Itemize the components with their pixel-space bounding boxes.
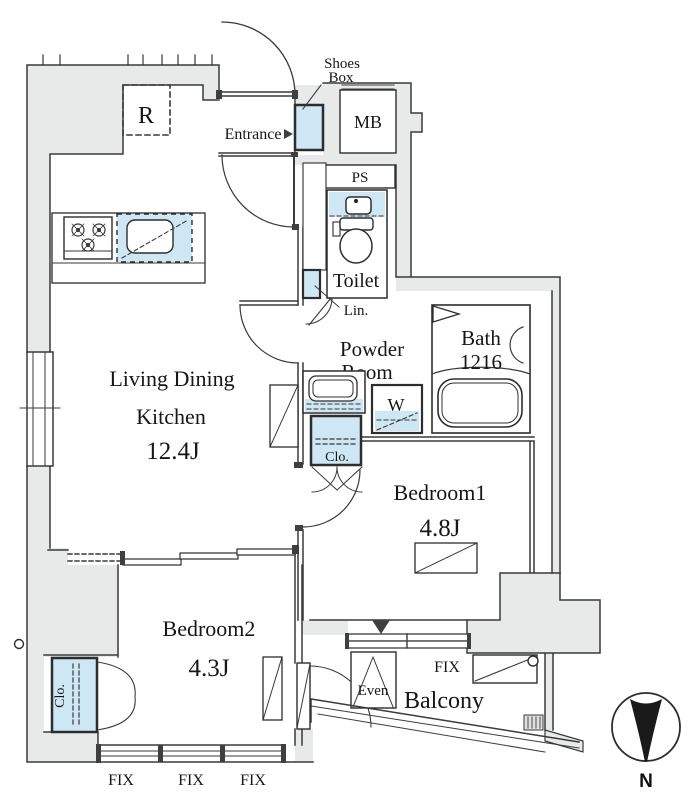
bedroom2-fix-windows [96, 744, 286, 763]
toilet-label: Toilet [333, 270, 380, 292]
ldk-label-2: Kitchen [136, 404, 206, 429]
shoes-box [295, 105, 323, 150]
meter-symbol [15, 640, 24, 649]
evacuation-hatch: Even [351, 652, 396, 708]
bath-size-label: 1216 [460, 350, 502, 374]
bedroom1-door-arc [303, 470, 360, 527]
ldk-label-1: Living Dining [109, 366, 234, 391]
bedroom2-size-label: 4.3J [189, 655, 230, 682]
meter-box-label: MB [354, 112, 382, 132]
balcony-label: Balcony [404, 688, 484, 714]
vanity-sink [303, 371, 365, 413]
fix-label-3: FIX [240, 772, 266, 789]
fix-label-2: FIX [178, 772, 204, 789]
washer-space: W [372, 385, 422, 433]
hand-wash-basin [346, 197, 371, 214]
floor-plan-page: Entrance Shoes Box MB PS Toilet Lin. Pow… [0, 0, 695, 800]
toilet-seat [340, 218, 373, 230]
bedroom2-closet-doors [97, 662, 135, 730]
ldk-window [20, 352, 60, 466]
bedroom2-closet: Clo. [52, 658, 135, 732]
ldk-size-label: 12.4J [146, 438, 200, 465]
refrigerator-label: R [138, 103, 154, 129]
bedroom1-size-label: 4.8J [420, 515, 461, 542]
boundary-tick-marks [43, 55, 212, 65]
entry-triangle-icon [372, 620, 390, 634]
balcony-drain [524, 715, 543, 730]
balcony-partition [473, 655, 538, 683]
fix-label-right: FIX [434, 659, 460, 676]
compass-icon: N [612, 693, 680, 792]
stove [64, 217, 112, 259]
ldk-bedroom2-partition [68, 545, 299, 565]
entrance-label: Entrance [225, 126, 282, 143]
evacuation-hatch-label: Even [358, 683, 389, 699]
kitchen-sink [117, 214, 192, 262]
entrance-door-arc [222, 22, 295, 95]
powder-room-label-1: Powder [340, 337, 404, 361]
bath-label: Bath [461, 326, 501, 350]
linen-label: Lin. [344, 303, 369, 319]
hall-closet: Clo. [311, 416, 362, 492]
bedroom1-label: Bedroom1 [394, 480, 487, 505]
shoes-box-label-2: Box [328, 70, 354, 86]
fix-label-1: FIX [108, 772, 134, 789]
closet-door-arcs [312, 467, 362, 492]
compass-north-label: N [639, 771, 653, 792]
hall-closet-label: Clo. [325, 450, 349, 465]
powder-door-arc [240, 305, 298, 363]
linen-cabinet [303, 270, 320, 298]
powder-door-leaf [240, 301, 298, 305]
floor-plan: Entrance Shoes Box MB PS Toilet Lin. Pow… [0, 0, 695, 800]
hall-door-arc [222, 155, 294, 227]
pipe-space-label: PS [352, 170, 369, 186]
toilet-door-arc [306, 298, 332, 325]
bath-room: Bath 1216 [432, 305, 530, 433]
washer-label: W [388, 395, 405, 415]
bedroom2-label: Bedroom2 [163, 616, 256, 641]
bedroom1-sliding-window [345, 633, 471, 649]
bedroom2-closet-label: Clo. [53, 684, 68, 708]
toilet-bowl [340, 229, 372, 263]
balcony: Even FIX Balcony [297, 652, 583, 752]
entrance-arrow-icon [284, 129, 293, 139]
